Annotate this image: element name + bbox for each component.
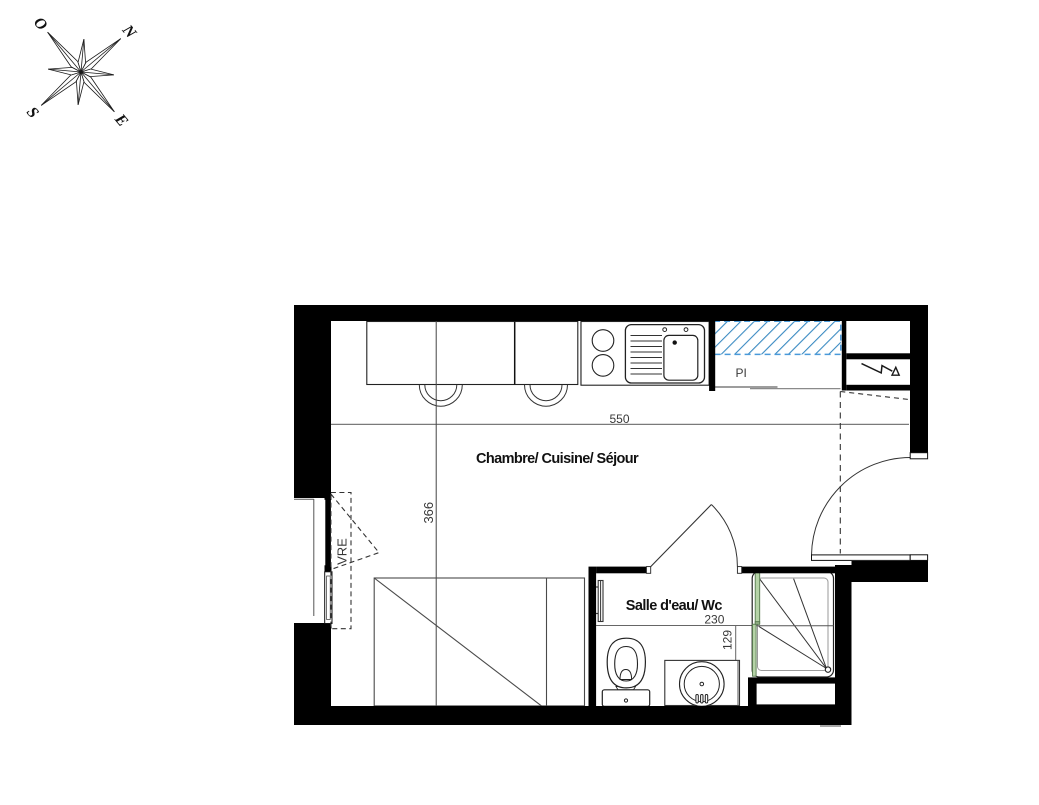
svg-text:Chambre/ Cuisine/ Séjour: Chambre/ Cuisine/ Séjour bbox=[476, 451, 639, 467]
svg-text:550: 550 bbox=[609, 412, 629, 426]
svg-text:Salle d'eau/ Wc: Salle d'eau/ Wc bbox=[626, 598, 723, 614]
svg-text:129: 129 bbox=[721, 630, 735, 650]
svg-text:230: 230 bbox=[704, 613, 724, 627]
svg-text:PI: PI bbox=[736, 366, 747, 380]
svg-text:VRE: VRE bbox=[335, 538, 350, 565]
svg-text:366: 366 bbox=[421, 502, 436, 524]
